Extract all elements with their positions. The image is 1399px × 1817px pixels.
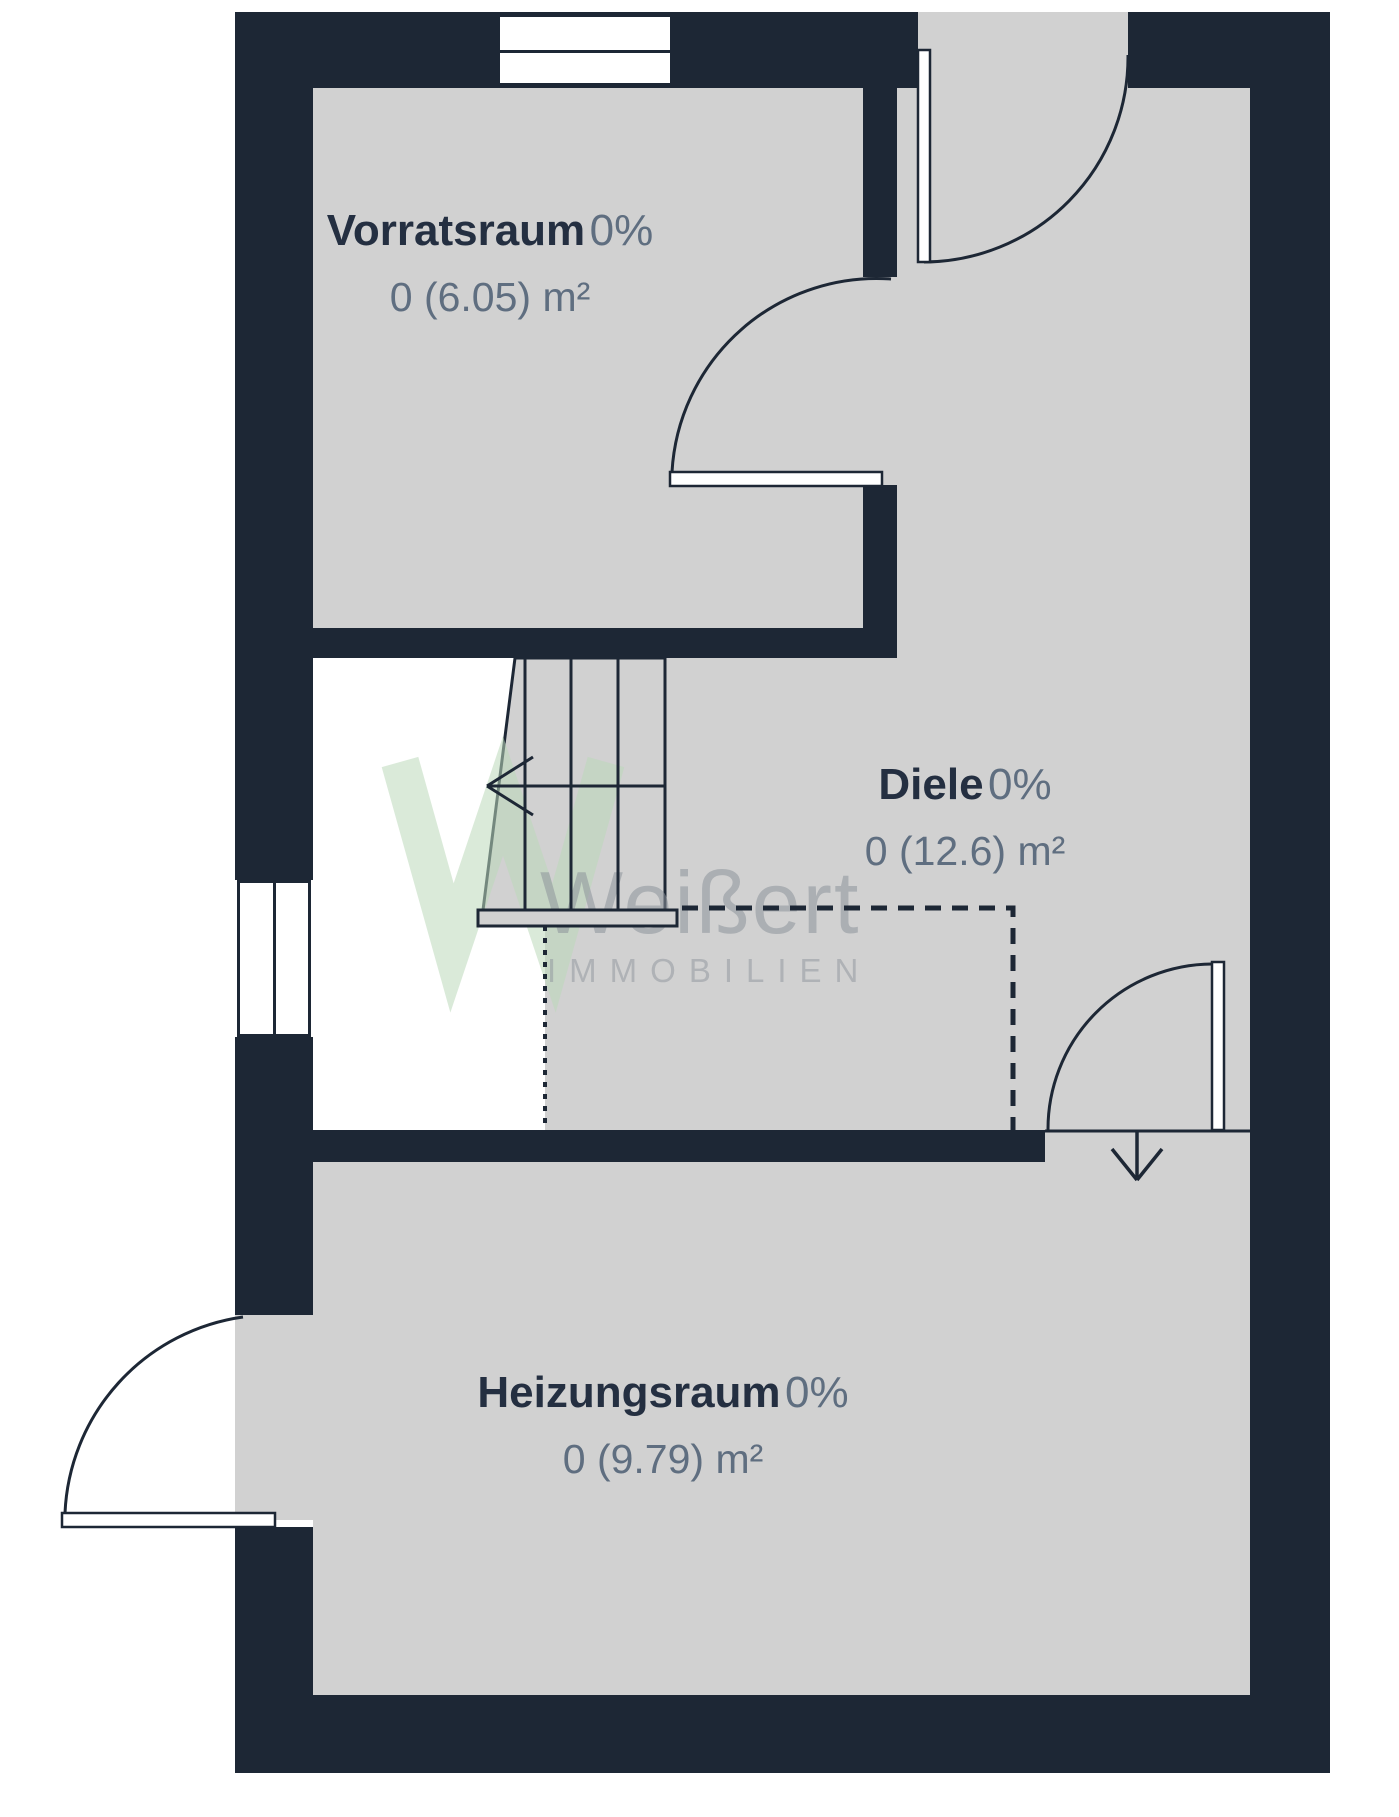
door-top-swing-arc xyxy=(924,55,1128,262)
heizungsraum-label: Heizungsraum 0% 0 (9.79) m² xyxy=(463,1368,863,1483)
door-heizungsraum-swing-arc xyxy=(1048,964,1212,1130)
stair-landing-bar xyxy=(478,910,677,926)
door-exterior-swing-arc xyxy=(65,1317,243,1513)
vorratsraum-area: 0 (6.05) m² xyxy=(290,274,690,321)
linework-layer xyxy=(0,0,1399,1817)
vorratsraum-name: Vorratsraum xyxy=(327,206,585,255)
floor-plan: Weißert IMMOBILIEN xyxy=(0,0,1399,1817)
vorratsraum-percent: 0% xyxy=(590,206,654,255)
door-top-leaf xyxy=(918,50,930,262)
door-exterior-leaf xyxy=(62,1513,275,1527)
heizungsraum-percent: 0% xyxy=(785,1368,849,1417)
stairs-direction-arrow-icon xyxy=(487,757,665,815)
diele-label: Diele 0% 0 (12.6) m² xyxy=(765,760,1165,875)
door-heizungsraum-leaf xyxy=(1212,962,1224,1130)
door-vorratsraum-swing-arc xyxy=(672,278,891,472)
diele-area: 0 (12.6) m² xyxy=(765,828,1165,875)
diele-name: Diele xyxy=(878,760,983,809)
heizungsraum-name: Heizungsraum xyxy=(477,1368,780,1417)
door-vorratsraum-leaf xyxy=(670,472,882,486)
entrance-direction-arrow-icon xyxy=(1112,1132,1162,1180)
vorratsraum-label: Vorratsraum 0% 0 (6.05) m² xyxy=(290,206,690,321)
heizungsraum-area: 0 (9.79) m² xyxy=(463,1436,863,1483)
diele-percent: 0% xyxy=(988,760,1052,809)
diele-dashed-line xyxy=(682,908,1013,1130)
